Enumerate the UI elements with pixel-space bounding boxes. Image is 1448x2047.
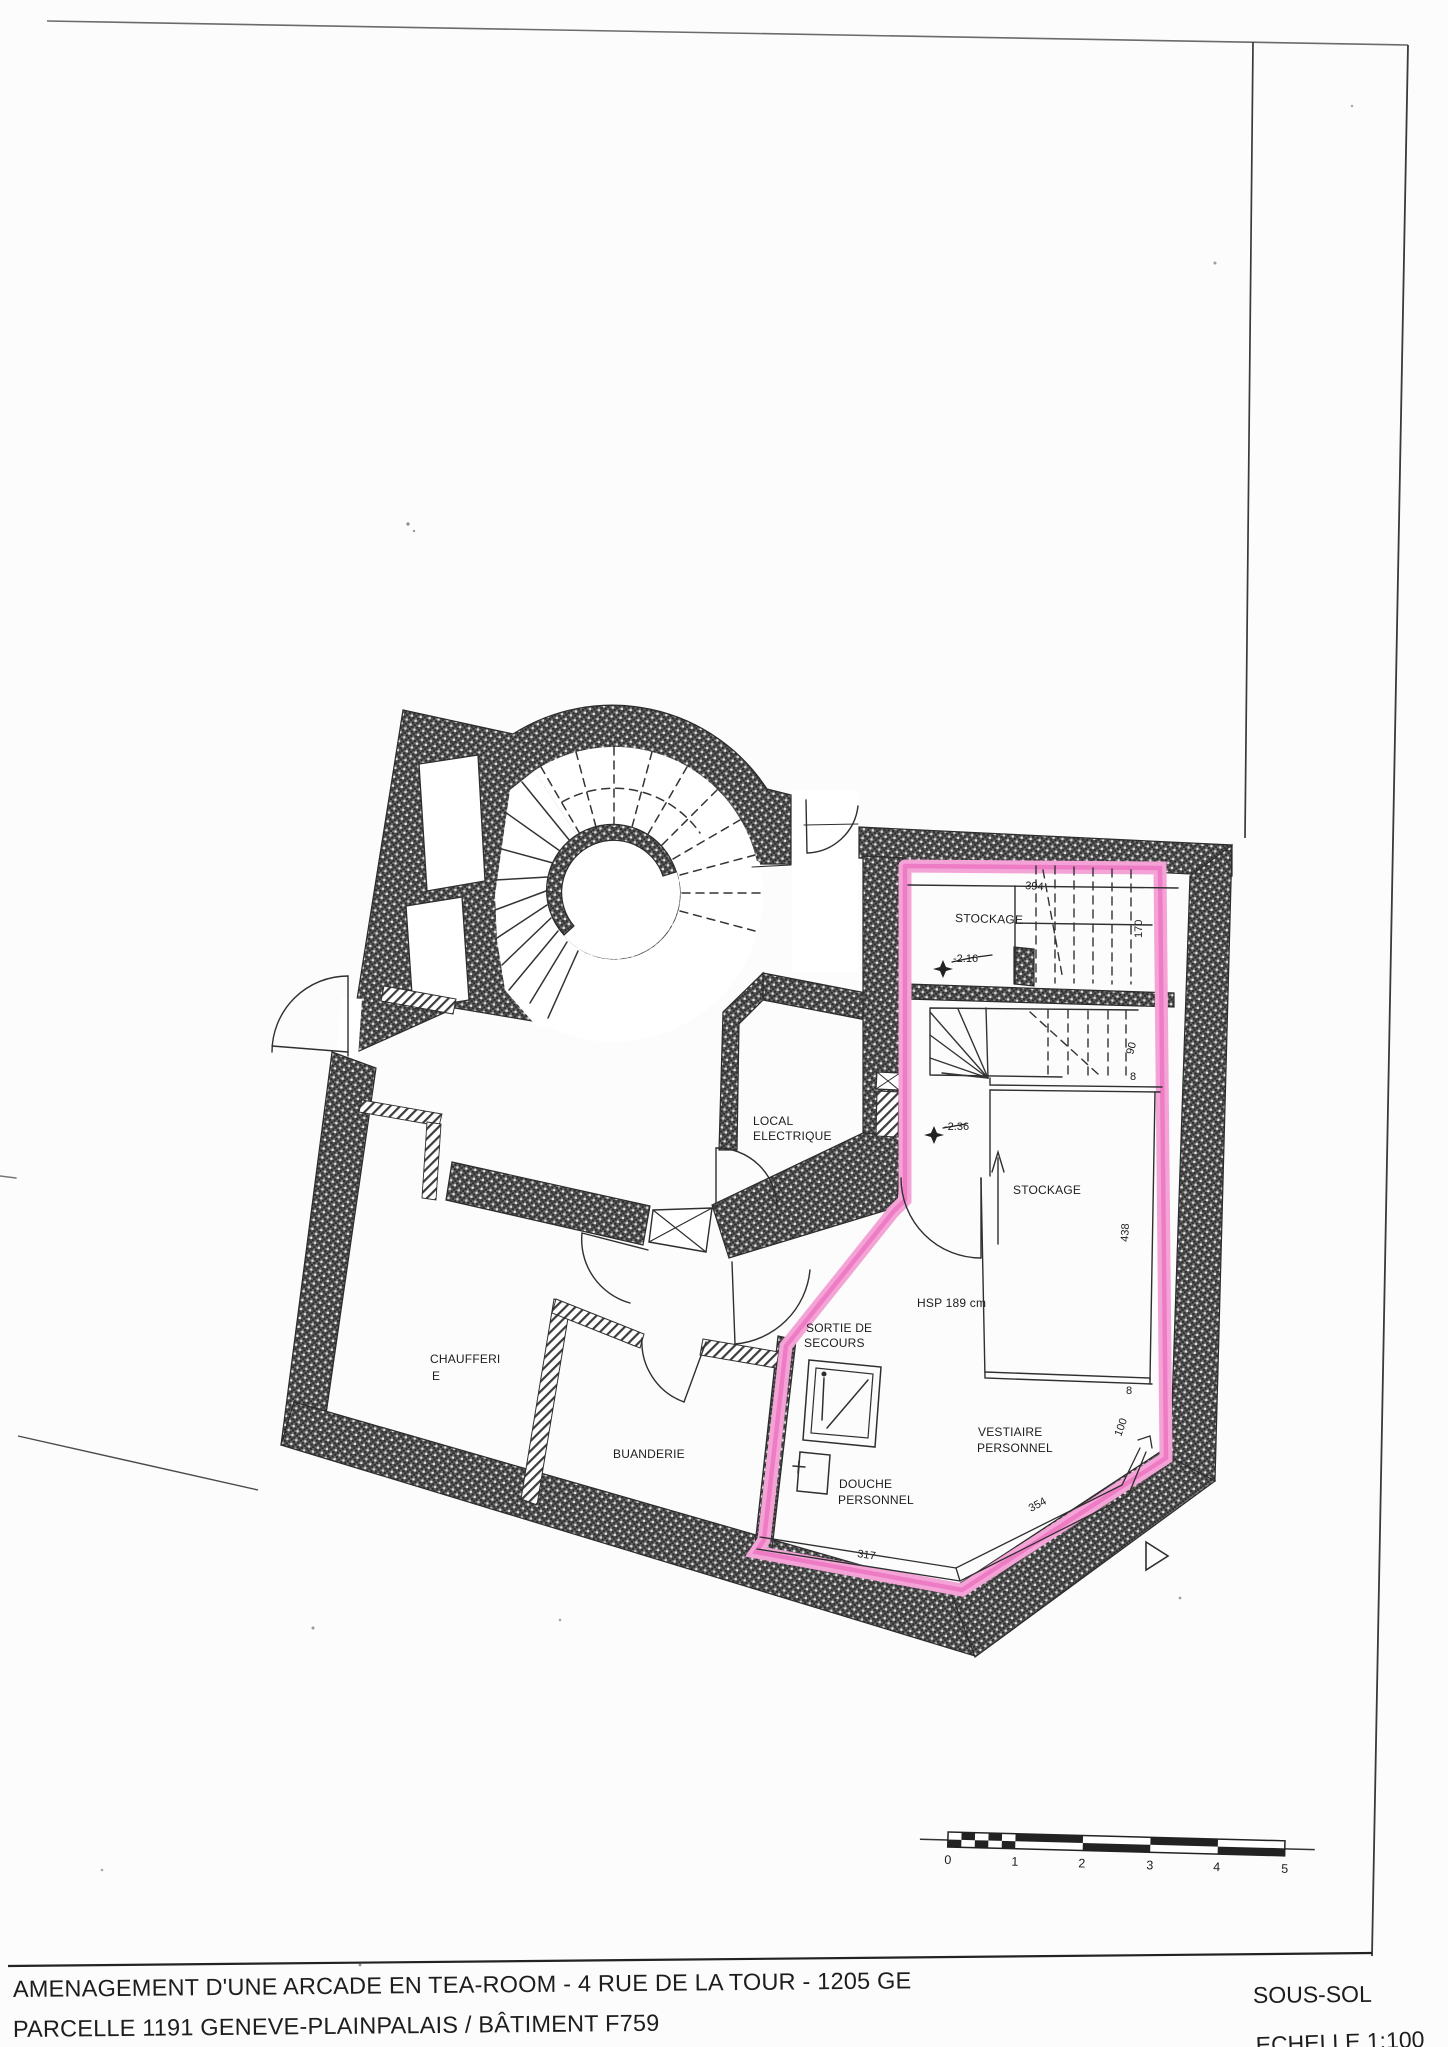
- svg-text:3: 3: [1146, 1858, 1153, 1872]
- svg-text:SECOURS: SECOURS: [804, 1336, 865, 1350]
- svg-text:STOCKAGE: STOCKAGE: [955, 911, 1023, 927]
- svg-text:STOCKAGE: STOCKAGE: [1013, 1183, 1081, 1197]
- svg-text:HSP 189 cm: HSP 189 cm: [917, 1296, 986, 1310]
- svg-text:1: 1: [1011, 1855, 1018, 1869]
- svg-text:394: 394: [1025, 880, 1044, 893]
- svg-text:317: 317: [857, 1548, 877, 1562]
- svg-text:-2.16: -2.16: [953, 953, 978, 965]
- svg-text:2: 2: [1078, 1856, 1085, 1870]
- svg-text:5: 5: [1281, 1862, 1288, 1876]
- svg-text:4: 4: [1213, 1860, 1220, 1874]
- svg-text:BUANDERIE: BUANDERIE: [613, 1447, 685, 1461]
- svg-text:PERSONNEL: PERSONNEL: [838, 1493, 914, 1507]
- svg-text:170: 170: [1133, 920, 1145, 938]
- svg-text:438: 438: [1119, 1223, 1132, 1242]
- svg-text:8: 8: [1126, 1385, 1132, 1397]
- svg-text:DOUCHE: DOUCHE: [839, 1477, 892, 1491]
- svg-text:PERSONNEL: PERSONNEL: [977, 1441, 1053, 1455]
- svg-text:0: 0: [944, 1853, 951, 1867]
- svg-text:ELECTRIQUE: ELECTRIQUE: [753, 1129, 832, 1143]
- svg-text:E: E: [432, 1369, 440, 1383]
- svg-text:8: 8: [1130, 1071, 1136, 1083]
- svg-text:VESTIAIRE: VESTIAIRE: [978, 1425, 1042, 1439]
- svg-text:CHAUFFERI: CHAUFFERI: [430, 1352, 500, 1366]
- svg-text:-2.36: -2.36: [944, 1121, 969, 1133]
- svg-text:LOCAL: LOCAL: [753, 1114, 793, 1128]
- svg-text:SOUS-SOL: SOUS-SOL: [1253, 1981, 1372, 2008]
- svg-text:SORTIE DE: SORTIE DE: [806, 1321, 872, 1335]
